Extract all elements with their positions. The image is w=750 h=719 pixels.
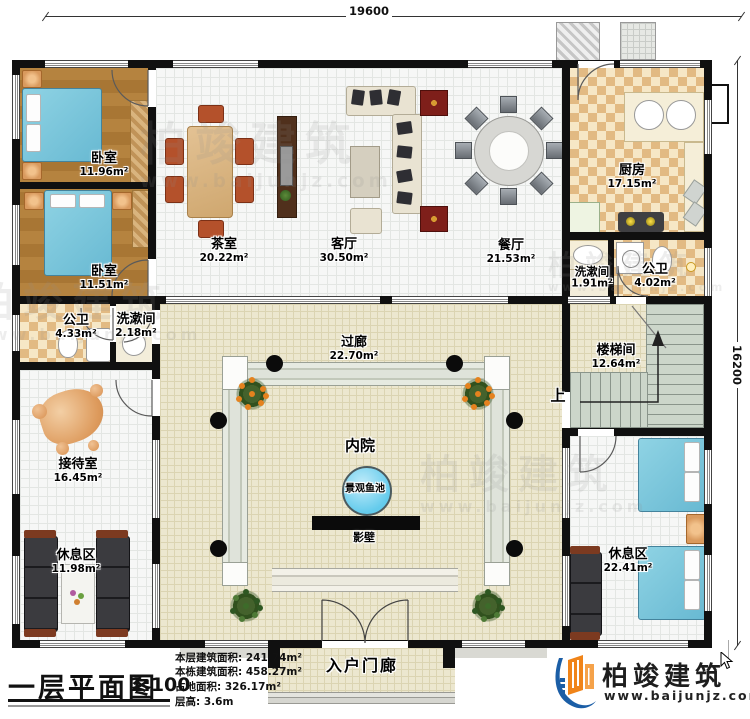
wall-niche [710,84,729,124]
window [12,556,20,624]
window [598,640,688,648]
door-opening [148,259,156,296]
sofa [570,552,602,636]
pillow [684,472,700,502]
window [704,555,712,611]
dimension-height: 16200 [730,342,744,388]
window [568,296,610,304]
sofa-arm [570,632,600,640]
sofa-cushion [351,89,365,106]
wall [443,648,455,668]
room-label-porch: 入户门廊 [326,657,398,675]
stat-storey-height: 层高: 3.6m [175,694,233,709]
room-label-pond: 景观鱼池 [345,483,385,494]
stair-up-label: 上 [550,388,565,405]
chair [235,176,254,203]
window [704,100,712,154]
door-opening [578,61,614,68]
shrub-icon [470,588,506,624]
window [45,60,128,68]
column [506,412,523,429]
sofa [96,536,130,632]
room-label-dining: 餐厅21.53m² [487,239,536,265]
fridge-icon [568,202,600,234]
burner [626,217,635,226]
window [12,420,20,494]
porch-steps [268,692,455,704]
floor-plan: 卧室11.96m² 卧室11.51m² 公卫4.33m² 洗漱间2.18m² 接… [0,0,750,719]
room-label-bedroom1: 卧室11.96m² [80,152,129,178]
pillow [26,94,41,122]
stool [32,404,47,419]
stat-floor-area: 本层建筑面积: 241.74m² [175,650,302,665]
hook [686,262,696,272]
exterior-hatch [556,22,600,62]
stool [88,440,99,451]
window [12,315,20,351]
sliding-door [392,296,508,304]
wall [562,232,712,240]
chair [198,220,224,238]
chair [235,138,254,165]
wardrobe [130,100,150,184]
dimension-line-top [45,16,742,17]
sink-icon [634,100,664,130]
door-opening [148,70,156,107]
chair [500,96,517,113]
stool [90,384,103,397]
door-opening [616,297,646,304]
sink-icon [666,100,696,130]
sliding-door [166,296,380,304]
nightstand [686,514,706,544]
room-label-reception: 接待室16.45m² [54,458,103,484]
room-label-corridor: 过廊22.70m² [330,336,379,362]
sink-icon [573,245,603,265]
sofa-arm [570,546,600,554]
sofa-cushion [396,145,412,159]
stat-building-area: 本栋建筑面积: 458.27m² [175,664,302,679]
potted-plant-icon [234,376,270,412]
chair [198,105,224,123]
stat-footprint: 占地面积: 326.17m² [175,679,281,694]
nightstand [22,162,42,180]
room-label-wash1: 洗漱间2.18m² [115,313,156,339]
dining-table-top [489,131,529,171]
brand-website: www.baijunjz.com [604,688,750,703]
room-label-rest1: 休息区11.98m² [52,549,101,575]
room-label-stairwell: 楼梯间12.64m² [592,344,641,370]
door-opening [322,641,408,648]
side-apron [455,648,547,658]
title-underline [8,699,170,702]
window [620,60,700,68]
window [462,640,525,648]
sofa-cushion [396,169,413,183]
window [205,640,268,648]
window [12,75,20,139]
wall [12,362,160,370]
window [468,60,552,68]
dimension-width: 19600 [346,4,392,18]
room-label-screen-wall: 影壁 [353,532,375,544]
chair [500,188,517,205]
window [704,450,712,504]
tv-icon [280,146,293,186]
room-label-bath2: 公卫4.02m² [634,263,675,289]
sofa-arm [96,629,128,637]
sofa-cushion [387,89,401,106]
flower-deco [70,590,76,596]
shrub-icon [228,588,264,624]
pillow [684,580,700,610]
pillow [684,550,700,580]
stair-flight-vertical [646,304,704,428]
room-label-bath1: 公卫4.33m² [55,314,96,340]
sofa-arm [24,629,56,637]
nightstand [112,192,132,210]
column [210,412,227,429]
sofa-cushion [396,191,412,205]
title-underline [8,705,170,707]
chair [546,142,563,159]
chair [165,138,184,165]
window [12,205,20,265]
armchair [350,208,382,234]
brand-logo-icon [548,650,598,714]
window [173,60,258,68]
wall [12,182,152,189]
pillow [79,194,105,208]
nightstand [24,192,44,210]
door-opening [578,429,614,436]
plant-icon [280,190,291,201]
entry-platform [272,568,458,592]
stove-icon [618,212,664,232]
pillow [26,124,41,152]
chair [455,142,472,159]
room-label-kitchen: 厨房17.15m² [608,164,657,190]
sofa-arm [96,530,128,538]
window [704,248,712,296]
room-label-bedroom2: 卧室11.51m² [80,265,129,291]
room-label-wash2: 洗漱间1.91m² [571,266,612,291]
room-label-courtyard: 内院 [345,438,375,455]
chair [165,176,184,203]
room-label-living: 客厅30.50m² [320,238,369,264]
window [152,564,160,628]
pillow [50,194,76,208]
exterior-grid [620,22,656,60]
window [562,556,570,626]
wall [562,60,570,304]
colonnade-pillar [222,562,248,586]
sofa-arm [24,530,56,538]
stool [56,442,69,455]
nightstand [22,70,42,88]
tea-table [187,126,233,218]
window [562,448,570,518]
stair-flight-horizontal [570,372,648,428]
room-label-rest2: 休息区22.41m² [604,548,653,574]
sofa-cushion [369,89,383,105]
column [266,355,283,372]
column [506,540,523,557]
coffee-table [350,146,380,198]
room-label-tea: 茶室20.22m² [200,238,249,264]
pillow [684,442,700,472]
potted-plant-icon [460,376,496,412]
burner [646,217,655,226]
mouse-cursor-icon [720,652,734,670]
colonnade-pillar [484,562,510,586]
side-table [420,206,448,232]
window [40,640,125,648]
screen-wall [312,516,420,530]
door-opening [152,379,160,416]
window [152,440,160,518]
column [446,355,463,372]
column [210,540,227,557]
side-table [420,90,448,116]
sofa-cushion [396,121,413,135]
